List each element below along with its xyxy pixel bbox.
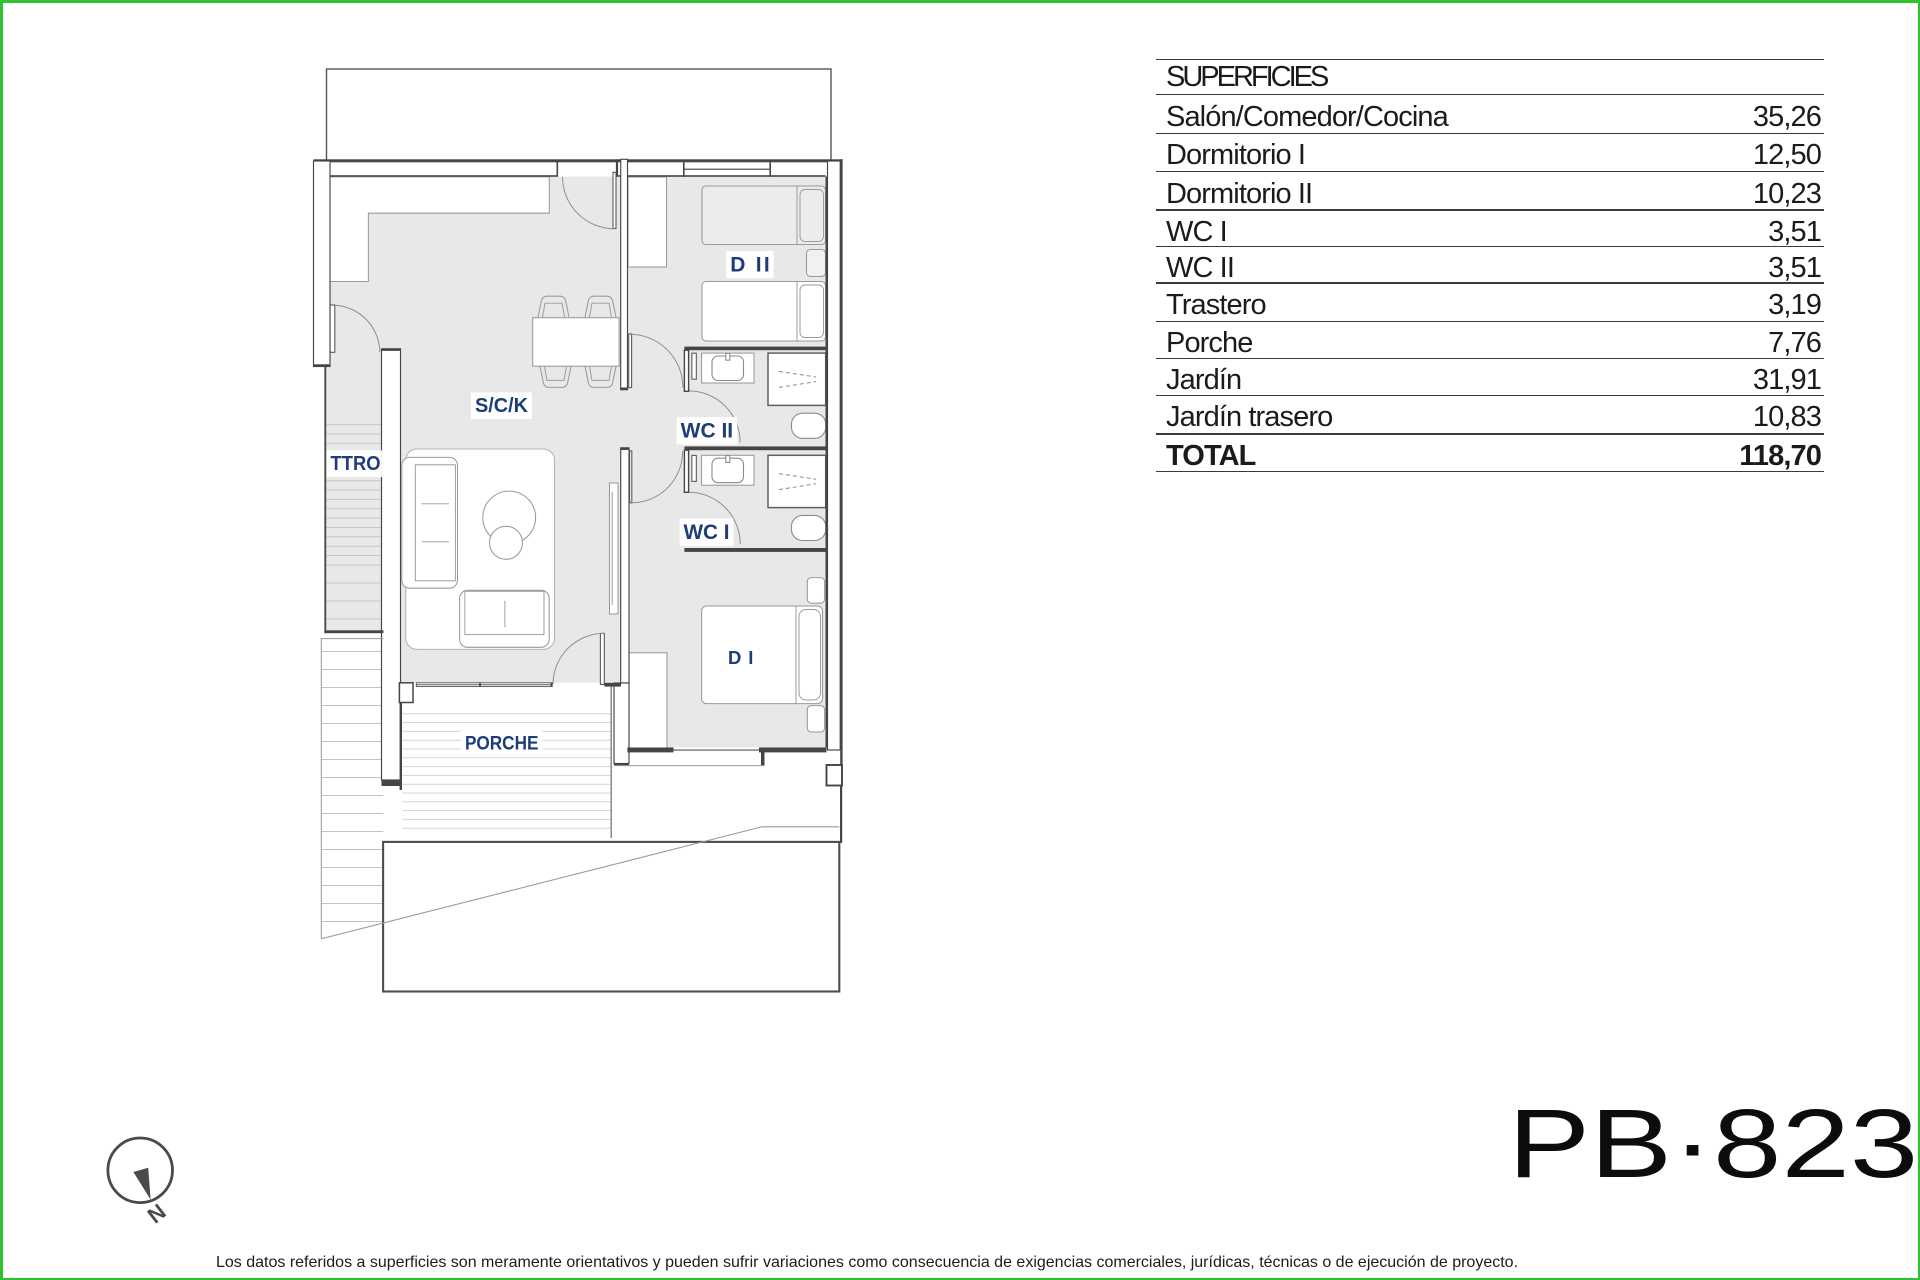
svg-text:D II: D II: [730, 253, 770, 276]
svg-text:PORCHE: PORCHE: [465, 733, 539, 755]
svg-text:WC II: WC II: [681, 420, 734, 443]
svg-text:WC I: WC I: [684, 521, 730, 544]
svg-text:TTRO: TTRO: [331, 453, 381, 475]
svg-text:S/C/K: S/C/K: [475, 395, 529, 417]
svg-text:D I: D I: [728, 647, 754, 668]
